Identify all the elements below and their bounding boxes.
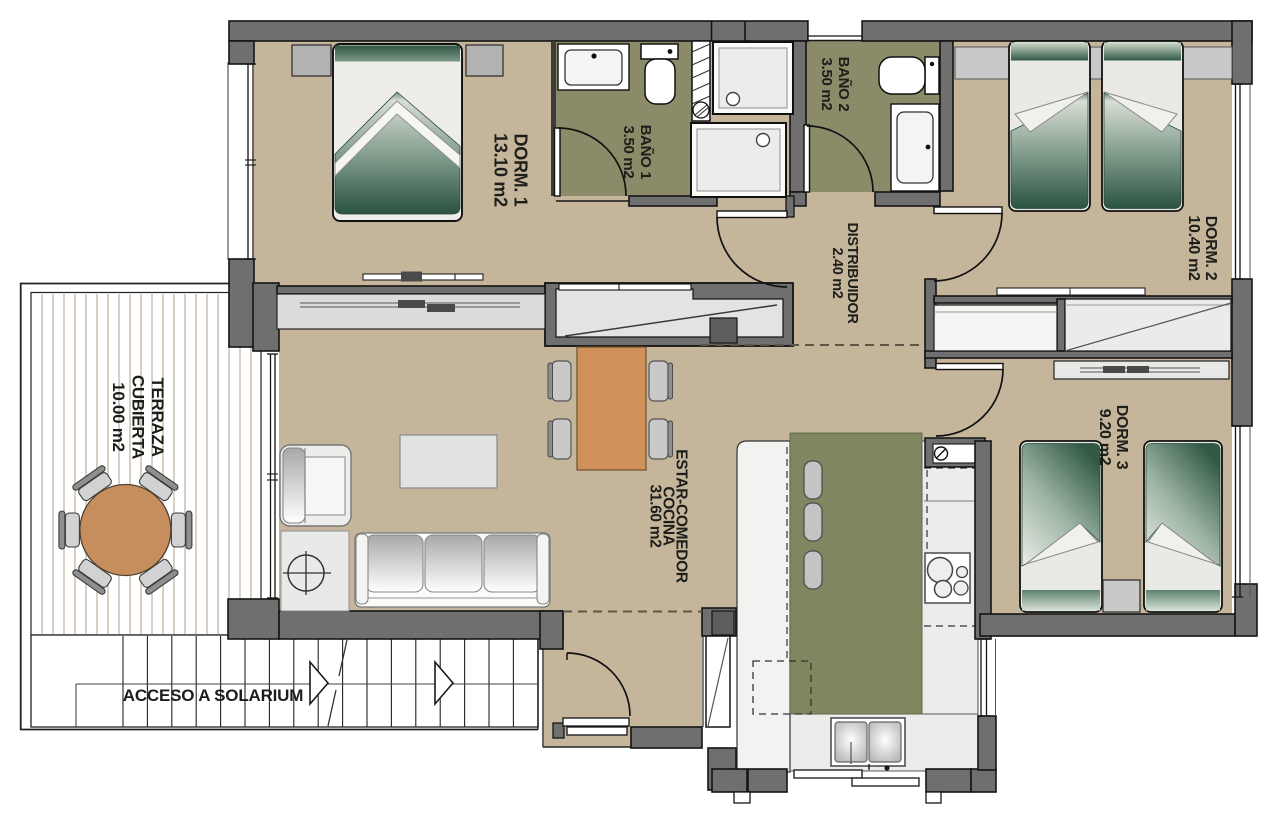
svg-text:DORM. 39.20 m2: DORM. 39.20 m2 <box>1096 405 1130 470</box>
svg-text:DORM. 113.10 m2: DORM. 113.10 m2 <box>491 133 531 207</box>
svg-text:TERRAZACUBIERTA10.00 m2: TERRAZACUBIERTA10.00 m2 <box>109 375 167 459</box>
svg-text:DORM. 210.40 m2: DORM. 210.40 m2 <box>1185 215 1219 281</box>
svg-text:ACCESO A SOLARIUM: ACCESO A SOLARIUM <box>123 686 303 705</box>
svg-text:BAÑO 13.50 m2: BAÑO 13.50 m2 <box>620 125 655 180</box>
svg-text:BAÑO 23.50 m2: BAÑO 23.50 m2 <box>818 57 853 112</box>
